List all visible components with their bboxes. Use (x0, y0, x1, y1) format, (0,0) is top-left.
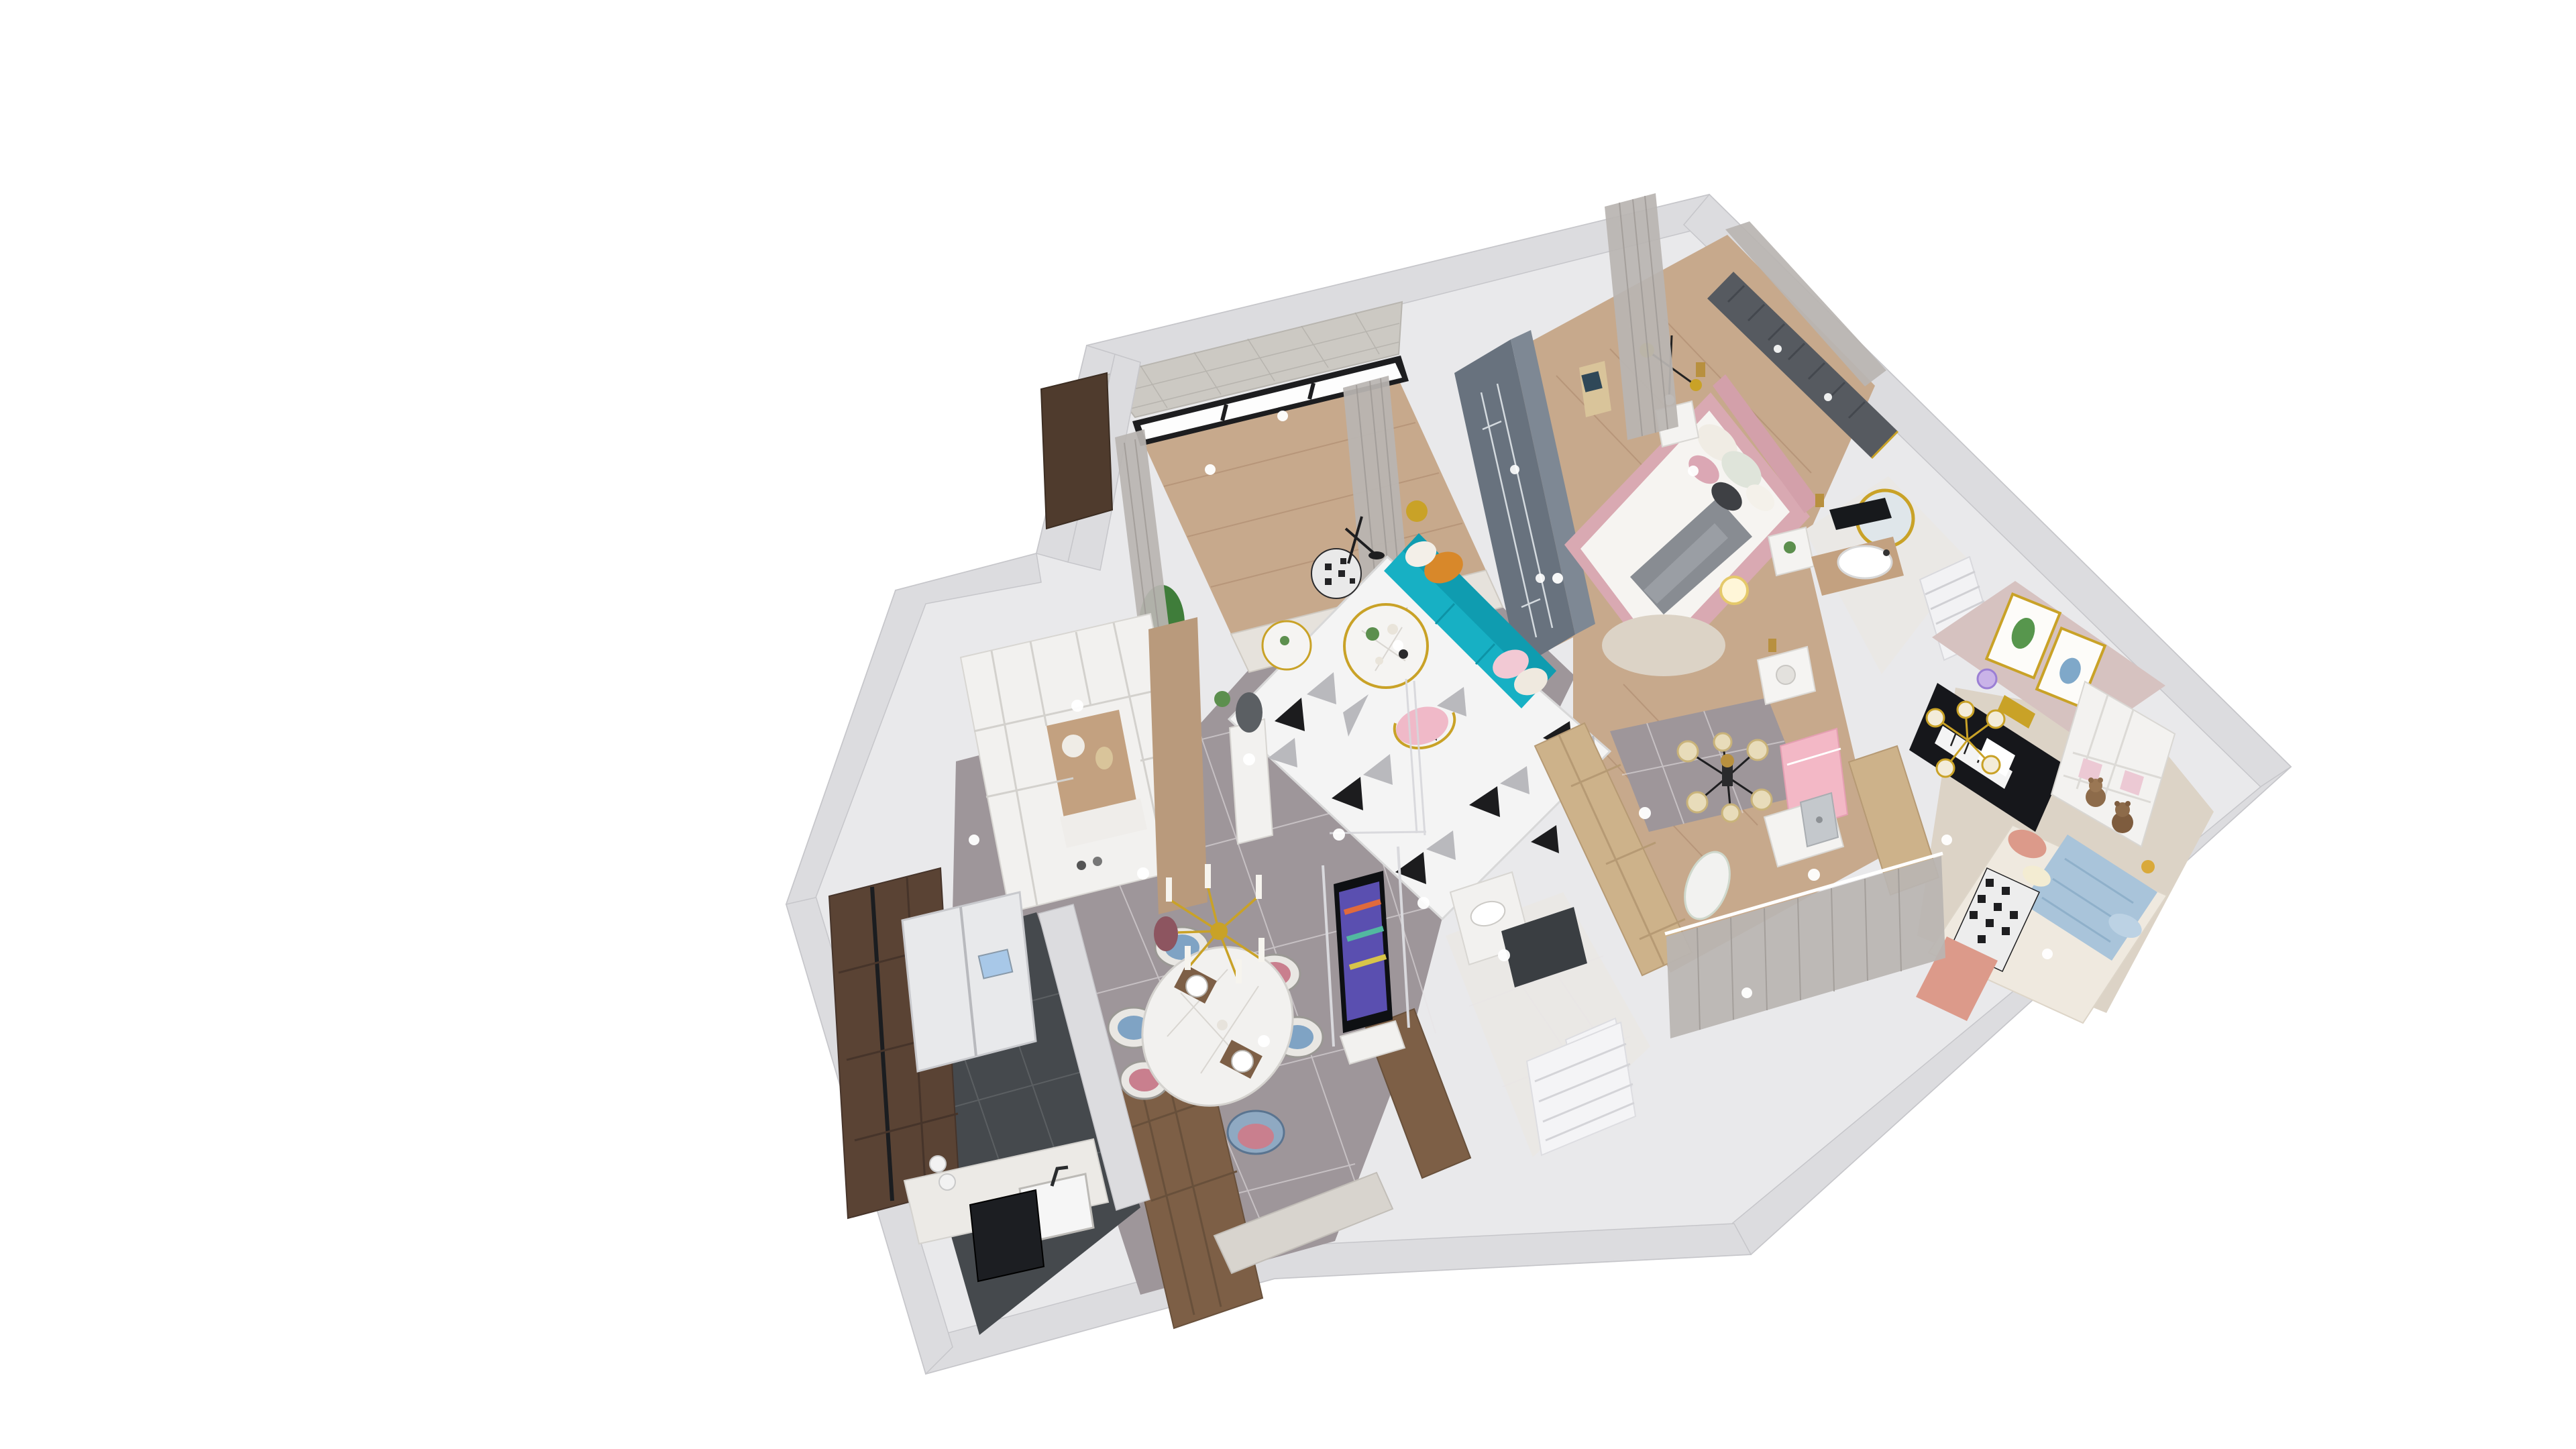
wall-light-1 (1510, 465, 1519, 474)
fridge (902, 892, 1036, 1071)
niche-hat (1062, 735, 1085, 757)
bench-shoe-2 (1093, 857, 1102, 866)
coffee-table-small (1263, 621, 1311, 669)
chair-bottom-mixed (1228, 1111, 1284, 1154)
balcony-dark-cabinet (1041, 373, 1112, 529)
pedestal-column (1230, 719, 1273, 844)
side-table-succulent (1784, 541, 1796, 553)
floorplan-svg: 3D axonometric apartment floor plan rend… (0, 0, 2576, 1449)
slat-spot-1 (1774, 345, 1782, 353)
drum-lamp (1721, 577, 1748, 604)
bench-shoe-1 (1077, 861, 1086, 870)
giraffe-toy (2141, 860, 2155, 873)
houndstooth-pouf (1311, 549, 1361, 598)
dishware-1 (930, 1156, 946, 1172)
dishware-2 (939, 1174, 955, 1190)
niche-bag (1095, 747, 1113, 769)
hall-wood-panel (1148, 617, 1207, 914)
bed-foot-rug (1602, 614, 1725, 676)
mobile-gold-disc-2 (1690, 379, 1702, 391)
coffee-table-large (1344, 604, 1428, 688)
render-canvas: 3D axonometric apartment floor plan rend… (0, 0, 2576, 1449)
appliance-door (1776, 665, 1795, 684)
black-appliance (970, 1190, 1044, 1281)
pedestal-sculpture (1236, 692, 1263, 733)
gold-pendant-2 (1815, 494, 1824, 507)
slat-spot-2 (1824, 393, 1832, 401)
piano-glow-lamp (1978, 669, 1996, 688)
wall-light-2 (1536, 574, 1545, 583)
pouf-top (1311, 549, 1361, 598)
imac-logo (1816, 816, 1823, 823)
gold-pendant-1 (1696, 362, 1705, 377)
corridor-gold-pendant (1768, 639, 1776, 652)
sink-faucet (1883, 549, 1890, 556)
console-plant (1214, 691, 1230, 707)
gold-sphere-decor (1406, 500, 1428, 522)
